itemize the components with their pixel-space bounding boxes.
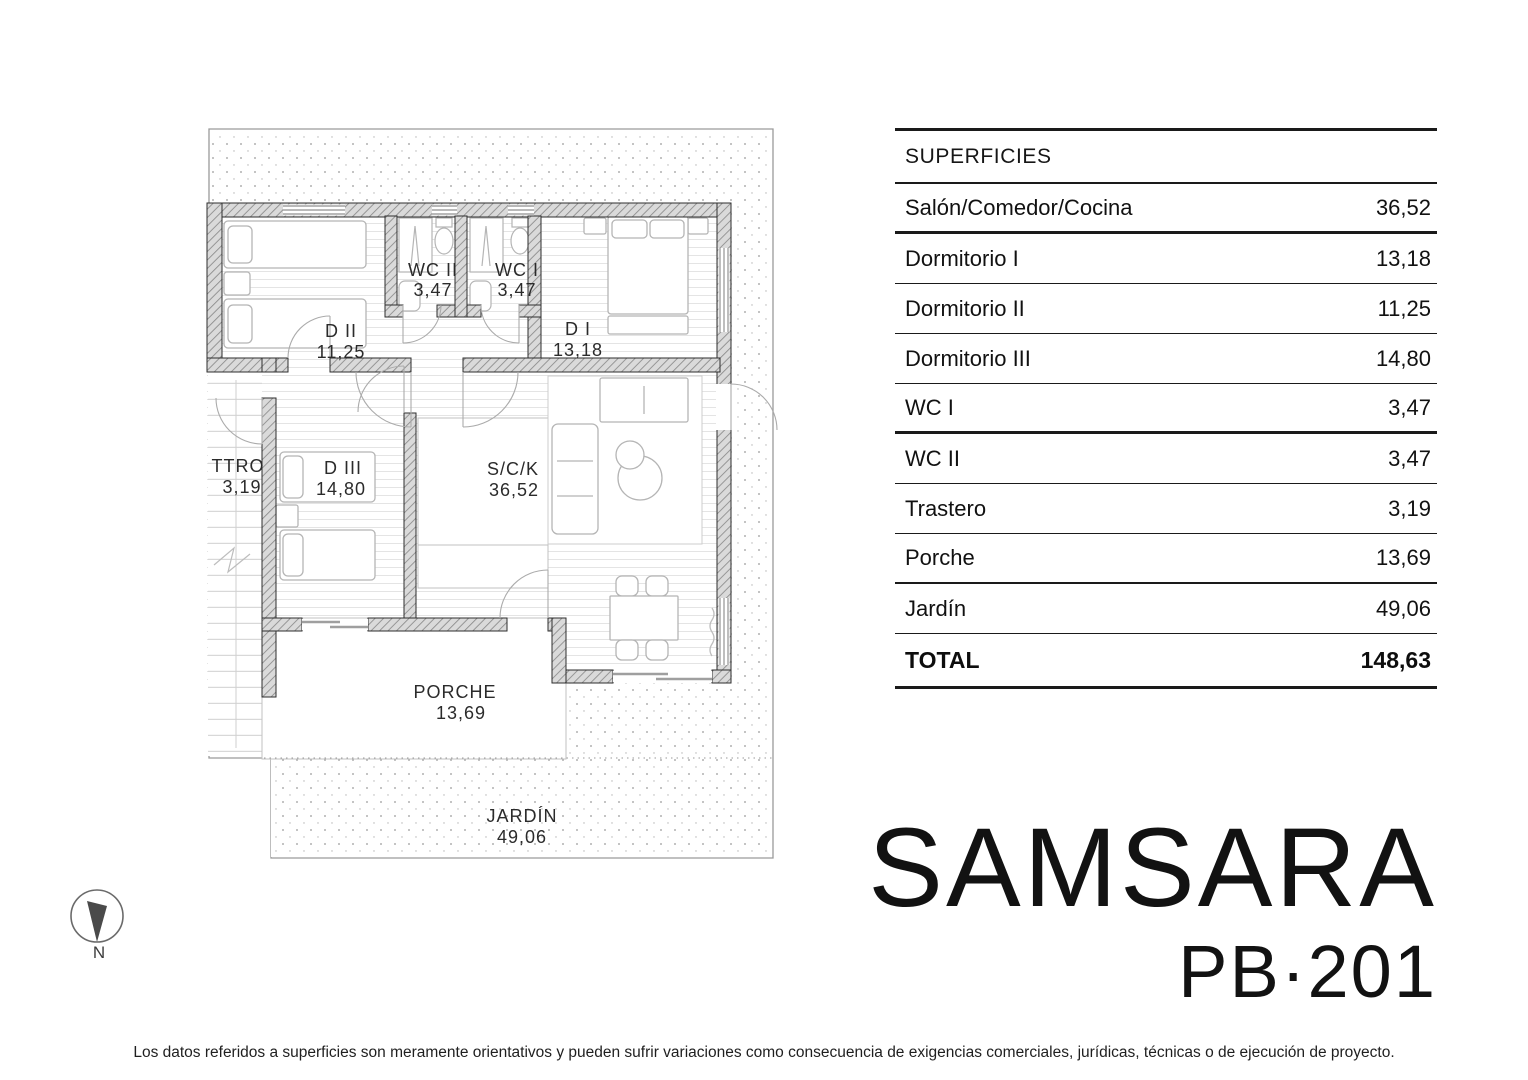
room-area-jardin: 49,06 bbox=[497, 827, 547, 847]
table-row: Dormitorio III 14,80 bbox=[895, 334, 1437, 384]
trastero-strip bbox=[208, 372, 262, 756]
room-area-wc1: 3,47 bbox=[497, 280, 536, 300]
title-block: SAMSARA PB·201 bbox=[868, 816, 1437, 1009]
table-row: Salón/Comedor/Cocina 36,52 bbox=[895, 184, 1437, 234]
table-row: Porche 13,69 bbox=[895, 534, 1437, 584]
row-value: 49,06 bbox=[1376, 596, 1431, 622]
floor-plan: D II 11,25 WC II 3,47 WC I 3,47 D I 13,1… bbox=[0, 0, 860, 1080]
room-label-wc2: WC II bbox=[408, 260, 458, 280]
surfaces-table-header: SUPERFICIES bbox=[895, 131, 1437, 184]
compass-north-label: N bbox=[93, 943, 105, 962]
room-area-sck: 36,52 bbox=[489, 480, 539, 500]
table-row: WC I 3,47 bbox=[895, 384, 1437, 434]
unit-code: PB·201 bbox=[868, 935, 1437, 1009]
row-label: Jardín bbox=[905, 596, 966, 622]
total-label: TOTAL bbox=[905, 647, 980, 674]
row-value: 3,47 bbox=[1388, 395, 1431, 421]
room-label-jardin: JARDÍN bbox=[486, 806, 557, 826]
north-compass-icon: N bbox=[71, 890, 123, 962]
room-area-wc2: 3,47 bbox=[413, 280, 452, 300]
room-label-sck: S/C/K bbox=[487, 459, 539, 479]
row-label: Dormitorio III bbox=[905, 346, 1031, 372]
room-label-d2: D II bbox=[325, 321, 357, 341]
row-value: 3,19 bbox=[1388, 496, 1431, 522]
room-area-d3: 14,80 bbox=[316, 479, 366, 499]
table-row: Jardín 49,06 bbox=[895, 584, 1437, 634]
total-value: 148,63 bbox=[1361, 647, 1431, 674]
surfaces-table: SUPERFICIES Salón/Comedor/Cocina 36,52 D… bbox=[895, 128, 1437, 689]
room-label-d1: D I bbox=[565, 319, 591, 339]
plan-sheet: D II 11,25 WC II 3,47 WC I 3,47 D I 13,1… bbox=[0, 0, 1528, 1080]
row-label: Trastero bbox=[905, 496, 986, 522]
table-row: Dormitorio I 13,18 bbox=[895, 234, 1437, 284]
row-label: Salón/Comedor/Cocina bbox=[905, 195, 1132, 221]
room-area-d2: 11,25 bbox=[317, 342, 366, 362]
row-label: WC II bbox=[905, 446, 960, 472]
table-row: WC II 3,47 bbox=[895, 434, 1437, 484]
row-label: Dormitorio I bbox=[905, 246, 1019, 272]
row-label: Porche bbox=[905, 545, 975, 571]
kitchen-counter bbox=[418, 418, 548, 588]
room-area-porche: 13,69 bbox=[436, 703, 486, 723]
table-total-row: TOTAL 148,63 bbox=[895, 634, 1437, 686]
room-label-wc1: WC I bbox=[495, 260, 539, 280]
row-label: Dormitorio II bbox=[905, 296, 1025, 322]
row-value: 14,80 bbox=[1376, 346, 1431, 372]
room-area-ttro: 3,19 bbox=[222, 477, 261, 497]
disclaimer-text: Los datos referidos a superficies son me… bbox=[0, 1044, 1528, 1062]
table-row: Trastero 3,19 bbox=[895, 484, 1437, 534]
table-row: Dormitorio II 11,25 bbox=[895, 284, 1437, 334]
room-label-d3: D III bbox=[324, 458, 362, 478]
room-label-porche: PORCHE bbox=[413, 682, 496, 702]
row-label: WC I bbox=[905, 395, 954, 421]
room-label-ttro: TTRO bbox=[212, 456, 265, 476]
row-value: 13,69 bbox=[1376, 545, 1431, 571]
room-area-d1: 13,18 bbox=[553, 340, 603, 360]
row-value: 11,25 bbox=[1378, 296, 1431, 322]
row-value: 3,47 bbox=[1388, 446, 1431, 472]
project-name: SAMSARA bbox=[868, 816, 1437, 919]
row-value: 36,52 bbox=[1376, 195, 1431, 221]
row-value: 13,18 bbox=[1376, 246, 1431, 272]
